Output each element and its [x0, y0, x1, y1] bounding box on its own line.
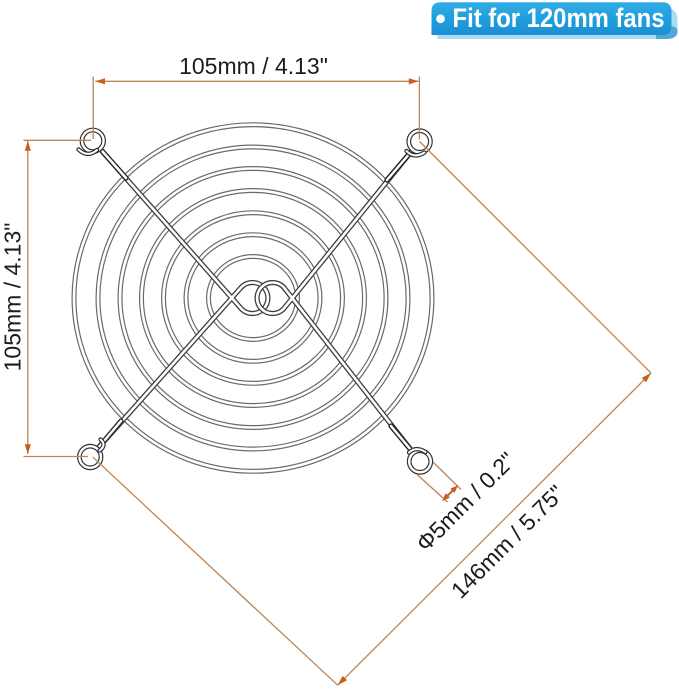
svg-text:105mm / 4.13": 105mm / 4.13" — [179, 53, 328, 79]
svg-text:Fit for 120mm fans: Fit for 120mm fans — [453, 3, 665, 33]
svg-text:105mm / 4.13": 105mm / 4.13" — [0, 223, 26, 372]
